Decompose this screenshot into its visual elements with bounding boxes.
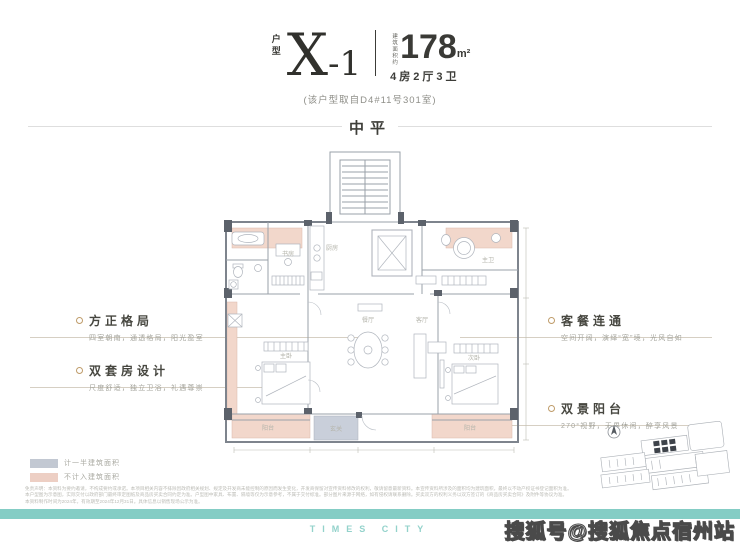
furniture: [228, 226, 501, 404]
legend-item-half-area: 计一半建筑面积: [30, 458, 120, 468]
header-divider: [375, 30, 376, 76]
plan-code-main: X: [287, 21, 328, 89]
callout-desc: 尺度舒适，独立卫浴，礼遇尊崇: [89, 383, 204, 393]
source-note: (该户型取自D4#11号301室): [0, 92, 740, 106]
room-label: 次卧: [468, 354, 480, 362]
room-count-label: 4房2厅3卫: [390, 68, 470, 84]
room-label: 主卧: [280, 352, 292, 360]
watermark-text: 搜狐号@搜狐焦点宿州站: [504, 515, 735, 544]
room-label: 客厅: [416, 316, 428, 324]
unit-type-label: 户型: [270, 34, 283, 58]
legend-item-not-counted: 不计入建筑面积: [30, 472, 120, 482]
plan-code: X-1: [287, 26, 361, 84]
callout-bullet-icon: [76, 367, 83, 374]
legend: 计一半建筑面积 不计入建筑面积: [30, 458, 120, 486]
legend-swatch-gray: [30, 459, 58, 468]
callout-bullet-icon: [548, 317, 555, 324]
area-unit: m²: [457, 48, 470, 60]
callout-title: 双景阳台: [561, 400, 625, 417]
floor-plan: 书房 厨房 主卫 餐厅 客厅 主卧 次卧 阳台 阳台 玄关: [202, 150, 542, 455]
callout-title: 双套房设计: [89, 362, 169, 379]
disclaimer-line: 本资料制作时间为2024年，有效期至2024年12月31日。具体信息以销售现场公…: [25, 499, 717, 505]
area-prefix-label: 建筑面积约: [390, 33, 398, 66]
header: 户型 X-1 建筑面积约 178 m² 4房2厅3卫: [0, 26, 740, 84]
room-label: 餐厅: [362, 316, 374, 324]
callout-desc: 四室朝南，通透格局，阳光盈室: [89, 333, 204, 343]
callout-double-suite: 双套房设计 尺度舒适，独立卫浴，礼遇尊崇: [76, 362, 204, 393]
disclaimer-text: 免责声明：本资料为要约邀请，不构成要约或承诺。本项目相关内容不排除因政府相关规划…: [25, 486, 717, 505]
area-value: 178: [400, 30, 457, 64]
callout-title: 客餐连通: [561, 312, 625, 329]
floor-level-heading: 中平: [0, 117, 740, 138]
plan-code-sub: -1: [328, 44, 361, 84]
callout-dining-connect: 客餐连通 空间开阔，演绎“宽”境，光风自如: [548, 312, 683, 343]
area-block: 建筑面积约 178 m² 4房2厅3卫: [390, 26, 470, 84]
room-label: 书房: [282, 250, 294, 258]
callout-bullet-icon: [76, 317, 83, 324]
room-label: 阳台: [262, 424, 274, 432]
callout-bullet-icon: [548, 405, 555, 412]
flyer-page: 户型 X-1 建筑面积约 178 m² 4房2厅3卫 (该户型取自D4#11号3…: [0, 0, 740, 545]
door-arcs: [308, 302, 450, 430]
stair-core: [330, 152, 400, 222]
legend-label: 计一半建筑面积: [64, 458, 120, 468]
room-label: 玄关: [330, 425, 342, 433]
callout-title: 方正格局: [89, 312, 153, 329]
legend-swatch-pink: [30, 473, 58, 482]
room-label: 主卫: [482, 256, 494, 264]
callout-square-layout: 方正格局 四室朝南，通透格局，阳光盈室: [76, 312, 204, 343]
room-label: 厨房: [326, 244, 338, 252]
callout-desc: 空间开阔，演绎“宽”境，光风自如: [561, 333, 683, 343]
legend-label: 不计入建筑面积: [64, 472, 120, 482]
room-label: 阳台: [464, 424, 476, 432]
compass-icon: [608, 425, 620, 438]
